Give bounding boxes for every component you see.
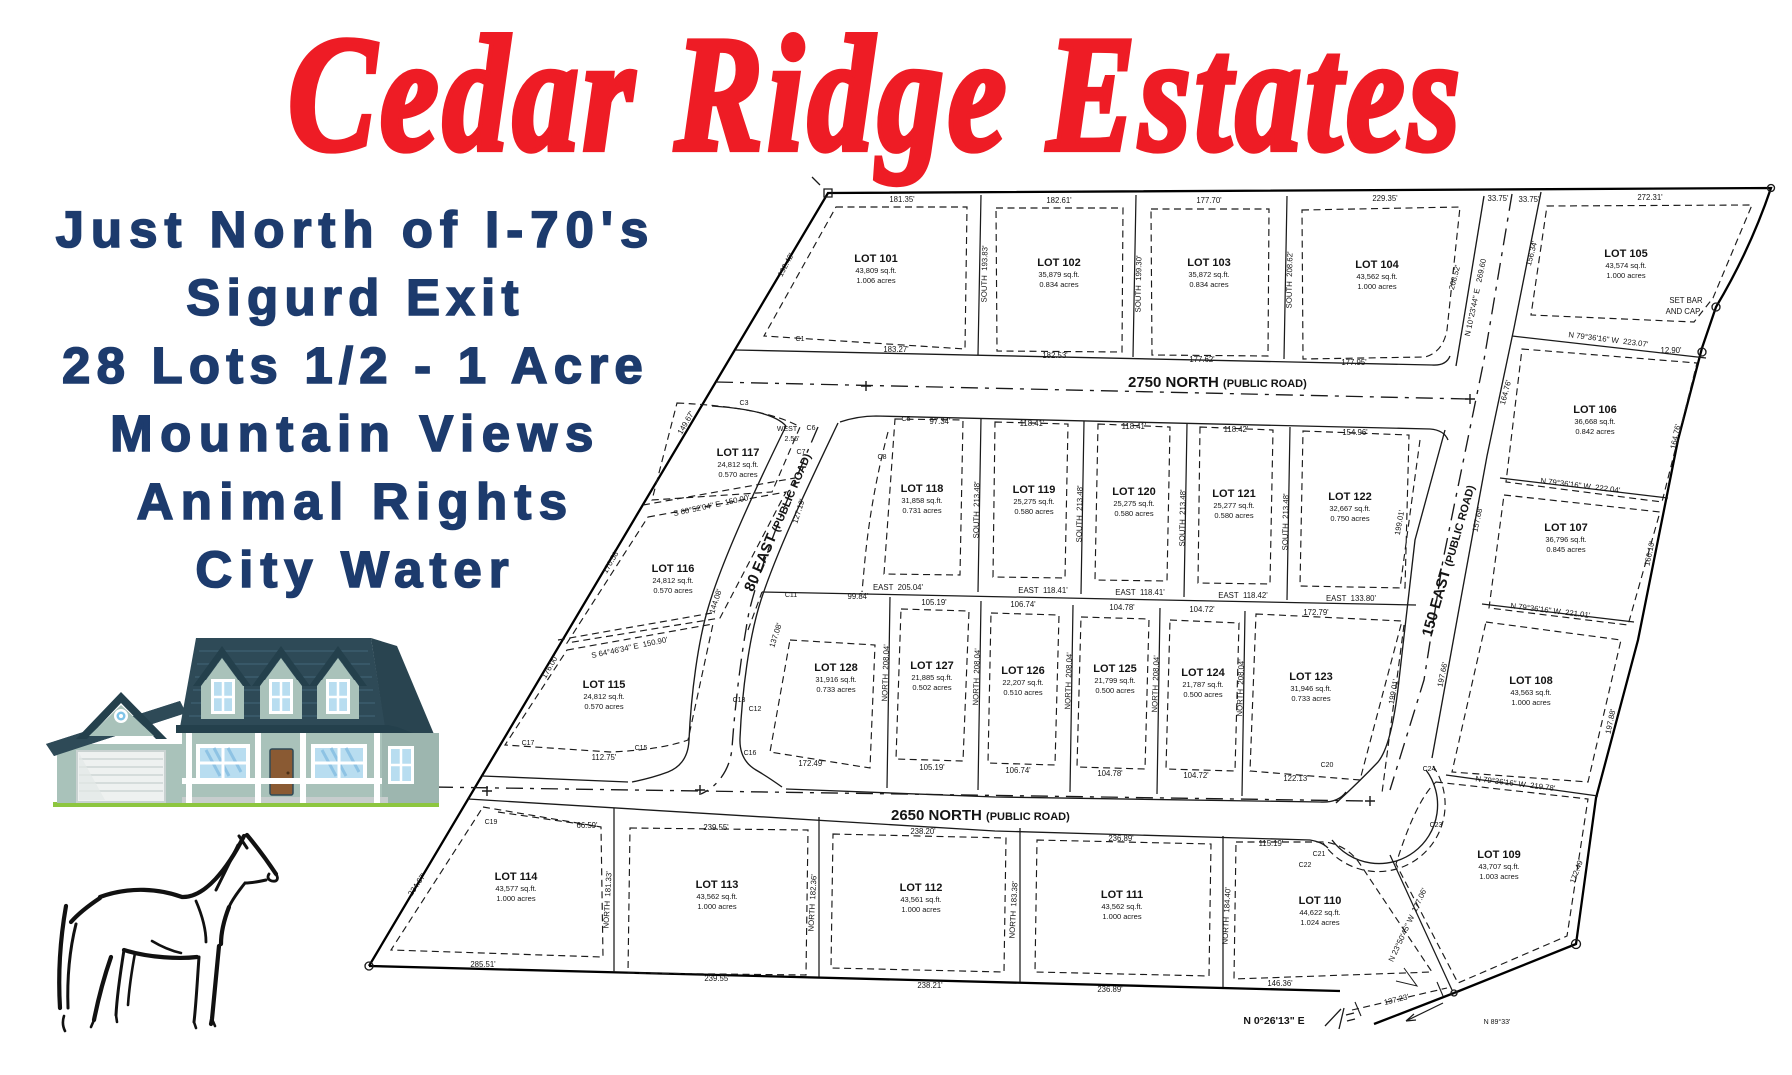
svg-text:LOT 113: LOT 113 — [696, 879, 739, 891]
svg-text:1.024 acres: 1.024 acres — [1300, 918, 1339, 927]
svg-text:1.000 acres: 1.000 acres — [1606, 271, 1645, 280]
svg-text:97.34': 97.34' — [930, 417, 952, 426]
svg-text:118.42': 118.42' — [1224, 425, 1249, 434]
svg-text:172.49': 172.49' — [798, 759, 824, 768]
svg-text:36,796 sq.ft.: 36,796 sq.ft. — [1545, 535, 1586, 544]
svg-text:43,577 sq.ft.: 43,577 sq.ft. — [495, 884, 536, 893]
svg-text:106.74': 106.74' — [1010, 600, 1036, 609]
svg-text:43,562 sq.ft.: 43,562 sq.ft. — [1101, 902, 1142, 911]
svg-text:177.70': 177.70' — [1196, 196, 1222, 205]
svg-text:137.23': 137.23' — [1383, 992, 1410, 1007]
svg-text:177.62': 177.62' — [1189, 355, 1215, 364]
svg-text:C17: C17 — [522, 740, 535, 747]
svg-text:N 89°33': N 89°33' — [1484, 1018, 1511, 1026]
svg-text:43,562 sq.ft.: 43,562 sq.ft. — [1356, 272, 1397, 281]
svg-text:C22: C22 — [1299, 862, 1312, 869]
svg-text:LOT 115: LOT 115 — [583, 679, 626, 691]
svg-text:1.000 acres: 1.000 acres — [901, 905, 940, 914]
svg-text:LOT 127: LOT 127 — [910, 660, 953, 672]
svg-text:208.52': 208.52' — [1447, 263, 1462, 290]
svg-text:0.834 acres: 0.834 acres — [1039, 280, 1078, 289]
svg-text:104.72': 104.72' — [1183, 771, 1209, 780]
svg-text:SOUTH 193.83': SOUTH 193.83' — [980, 245, 990, 303]
svg-text:112.75': 112.75' — [592, 753, 617, 762]
svg-text:25,275 sq.ft.: 25,275 sq.ft. — [1113, 499, 1154, 508]
svg-text:21,885 sq.ft.: 21,885 sq.ft. — [911, 673, 952, 682]
svg-text:SOUTH 213.48': SOUTH 213.48' — [1281, 493, 1291, 551]
svg-text:LOT 125: LOT 125 — [1093, 663, 1136, 675]
svg-text:EAST 118.41': EAST 118.41' — [1018, 586, 1068, 595]
svg-text:229.35': 229.35' — [1372, 194, 1398, 203]
svg-text:LOT 126: LOT 126 — [1001, 665, 1044, 677]
svg-text:25,275 sq.ft.: 25,275 sq.ft. — [1013, 497, 1054, 506]
svg-text:44,622 sq.ft.: 44,622 sq.ft. — [1299, 908, 1340, 917]
svg-text:EAST 118.41': EAST 118.41' — [1115, 588, 1165, 597]
svg-text:C8: C8 — [878, 454, 887, 461]
svg-text:1.000 acres: 1.000 acres — [1357, 282, 1396, 291]
svg-text:0.580 acres: 0.580 acres — [1014, 507, 1053, 516]
svg-text:22,207 sq.ft.: 22,207 sq.ft. — [1002, 678, 1043, 687]
svg-text:0.834 acres: 0.834 acres — [1189, 280, 1228, 289]
svg-text:199.01': 199.01' — [1393, 509, 1406, 536]
svg-text:236.89': 236.89' — [1097, 985, 1123, 994]
svg-text:LOT 102: LOT 102 — [1037, 257, 1080, 269]
svg-text:1.000 acres: 1.000 acres — [1511, 698, 1550, 707]
svg-text:238.20': 238.20' — [910, 827, 936, 836]
svg-text:LOT 110: LOT 110 — [1299, 895, 1342, 907]
svg-text:31,946 sq.ft.: 31,946 sq.ft. — [1290, 684, 1331, 693]
svg-text:LOT 104: LOT 104 — [1355, 259, 1399, 271]
svg-text:LOT 114: LOT 114 — [495, 871, 539, 883]
svg-text:239.55': 239.55' — [703, 823, 729, 832]
svg-text:99.84': 99.84' — [848, 592, 870, 601]
svg-text:C23: C23 — [1430, 822, 1443, 829]
svg-text:NORTH 208.04': NORTH 208.04' — [880, 644, 891, 702]
svg-text:182.61': 182.61' — [1046, 196, 1072, 205]
svg-text:137.08': 137.08' — [767, 621, 784, 648]
svg-text:NORTH 183.38': NORTH 183.38' — [1008, 881, 1020, 939]
svg-text:LOT 105: LOT 105 — [1604, 248, 1647, 260]
svg-text:N 79°36'16" W 223.07': N 79°36'16" W 223.07' — [1568, 330, 1649, 349]
svg-text:1.000 acres: 1.000 acres — [496, 894, 535, 903]
svg-text:43,707 sq.ft.: 43,707 sq.ft. — [1478, 862, 1519, 871]
svg-text:118.41': 118.41' — [1020, 419, 1045, 428]
svg-text:181.35': 181.35' — [889, 195, 915, 204]
svg-text:LOT 108: LOT 108 — [1509, 675, 1552, 687]
svg-text:104.78': 104.78' — [1109, 603, 1135, 612]
svg-text:24,812 sq.ft.: 24,812 sq.ft. — [583, 692, 624, 701]
svg-text:105.19': 105.19' — [921, 598, 947, 607]
svg-text:LOT 117: LOT 117 — [717, 447, 760, 459]
svg-text:LOT 119: LOT 119 — [1013, 484, 1056, 496]
svg-text:0.733 acres: 0.733 acres — [1291, 694, 1330, 703]
svg-text:SET BAR: SET BAR — [1669, 296, 1703, 305]
svg-text:NORTH 208.04': NORTH 208.04' — [1235, 659, 1246, 717]
svg-text:AND CAP: AND CAP — [1666, 307, 1701, 316]
svg-text:EAST 118.42': EAST 118.42' — [1218, 591, 1268, 600]
svg-text:WEST: WEST — [777, 426, 798, 433]
svg-text:66.59': 66.59' — [577, 821, 599, 830]
svg-text:0.570 acres: 0.570 acres — [584, 702, 623, 711]
svg-text:LOT 116: LOT 116 — [652, 563, 695, 575]
svg-text:105.19': 105.19' — [919, 763, 945, 772]
svg-text:25,277 sq.ft.: 25,277 sq.ft. — [1213, 501, 1254, 510]
svg-text:0.500 acres: 0.500 acres — [1095, 686, 1134, 695]
svg-text:C21: C21 — [1313, 851, 1326, 858]
svg-text:N 0°26'13" E: N 0°26'13" E — [1243, 1015, 1304, 1027]
svg-text:0.510 acres: 0.510 acres — [1003, 688, 1042, 697]
svg-text:33.75': 33.75' — [1519, 195, 1541, 204]
svg-text:LOT 107: LOT 107 — [1544, 522, 1587, 534]
svg-text:1.006 acres: 1.006 acres — [856, 276, 895, 285]
svg-text:LOT 123: LOT 123 — [1289, 671, 1332, 683]
svg-text:EAST 205.04': EAST 205.04' — [873, 583, 924, 592]
svg-text:LOT 109: LOT 109 — [1477, 849, 1520, 861]
svg-text:172.49': 172.49' — [1568, 857, 1585, 884]
svg-text:192.42': 192.42' — [776, 251, 796, 278]
svg-text:146.36': 146.36' — [1267, 979, 1293, 988]
svg-text:LOT 106: LOT 106 — [1573, 404, 1616, 416]
svg-text:C24: C24 — [1423, 766, 1436, 773]
svg-text:104.72': 104.72' — [1189, 605, 1215, 614]
svg-text:43,561 sq.ft.: 43,561 sq.ft. — [900, 895, 941, 904]
svg-text:31,858 sq.ft.: 31,858 sq.ft. — [901, 496, 942, 505]
svg-text:33.75': 33.75' — [1488, 194, 1510, 203]
svg-text:LOT 118: LOT 118 — [901, 483, 944, 495]
svg-text:C5: C5 — [902, 416, 911, 423]
svg-text:1.000 acres: 1.000 acres — [1102, 912, 1141, 921]
svg-text:0.580 acres: 0.580 acres — [1114, 509, 1153, 518]
svg-text:LOT 121: LOT 121 — [1212, 488, 1255, 500]
svg-text:SOUTH 208.62': SOUTH 208.62' — [1285, 251, 1295, 309]
svg-text:157.68': 157.68' — [1471, 506, 1485, 533]
svg-text:1.000 acres: 1.000 acres — [697, 902, 736, 911]
svg-text:0.502 acres: 0.502 acres — [912, 683, 951, 692]
svg-text:0.750 acres: 0.750 acres — [1330, 514, 1369, 523]
svg-text:35,879 sq.ft.: 35,879 sq.ft. — [1038, 270, 1079, 279]
svg-text:EAST 133.80': EAST 133.80' — [1326, 594, 1377, 603]
svg-text:LOT 124: LOT 124 — [1181, 667, 1225, 679]
svg-text:0.731 acres: 0.731 acres — [902, 506, 941, 515]
svg-text:0.845 acres: 0.845 acres — [1546, 545, 1585, 554]
svg-text:NORTH 208.04': NORTH 208.04' — [1063, 652, 1074, 710]
svg-text:LOT 111: LOT 111 — [1101, 889, 1143, 901]
svg-text:0.842 acres: 0.842 acres — [1575, 427, 1614, 436]
svg-text:N 79°36'16" W 219.78': N 79°36'16" W 219.78' — [1475, 774, 1556, 793]
svg-text:N 79°36'16" W 222.04': N 79°36'16" W 222.04' — [1540, 476, 1621, 495]
svg-text:177.95': 177.95' — [1341, 358, 1367, 367]
svg-text:156.34': 156.34' — [1524, 239, 1539, 266]
svg-text:285.51': 285.51' — [470, 960, 496, 969]
svg-text:0.500 acres: 0.500 acres — [1183, 690, 1222, 699]
svg-text:104.78': 104.78' — [1097, 769, 1123, 778]
svg-text:164.76': 164.76' — [1498, 378, 1513, 405]
svg-text:C1: C1 — [796, 336, 805, 343]
svg-text:NORTH 182.36': NORTH 182.36' — [807, 874, 819, 932]
svg-text:183.27': 183.27' — [883, 345, 909, 354]
svg-text:SOUTH 213.48': SOUTH 213.48' — [1178, 489, 1188, 547]
svg-text:236.89': 236.89' — [1108, 834, 1134, 843]
svg-text:C20: C20 — [1321, 762, 1334, 769]
svg-text:0.733 acres: 0.733 acres — [816, 685, 855, 694]
svg-text:NORTH 208.04': NORTH 208.04' — [971, 648, 982, 706]
svg-text:0.570 acres: 0.570 acres — [718, 470, 757, 479]
svg-text:239.55': 239.55' — [704, 974, 730, 983]
svg-text:LOT 120: LOT 120 — [1112, 486, 1155, 498]
svg-text:182.53': 182.53' — [1042, 351, 1068, 360]
svg-text:21,799 sq.ft.: 21,799 sq.ft. — [1094, 676, 1135, 685]
svg-text:C15: C15 — [635, 745, 648, 752]
svg-text:32,667 sq.ft.: 32,667 sq.ft. — [1329, 504, 1370, 513]
svg-text:2750 NORTH (PUBLIC ROAD): 2750 NORTH (PUBLIC ROAD) — [1128, 374, 1307, 391]
svg-text:115.19': 115.19' — [1259, 839, 1284, 848]
svg-text:SOUTH 213.48': SOUTH 213.48' — [972, 481, 982, 539]
svg-text:2.56': 2.56' — [785, 436, 800, 443]
svg-text:122.13': 122.13' — [1283, 774, 1309, 783]
svg-text:C11: C11 — [785, 592, 797, 599]
svg-text:LOT 112: LOT 112 — [900, 882, 943, 894]
svg-text:12.90': 12.90' — [1661, 346, 1683, 355]
svg-text:NORTH 208.04': NORTH 208.04' — [1150, 655, 1161, 713]
svg-text:C13: C13 — [733, 697, 746, 704]
svg-text:C19: C19 — [485, 819, 498, 826]
svg-text:1.003 acres: 1.003 acres — [1479, 872, 1518, 881]
svg-text:164.76': 164.76' — [1669, 423, 1683, 450]
svg-text:C6: C6 — [807, 425, 816, 432]
svg-text:150 EAST (PUBLIC ROAD): 150 EAST (PUBLIC ROAD) — [1419, 483, 1479, 639]
svg-text:272.31': 272.31' — [1637, 193, 1663, 202]
svg-text:31,916 sq.ft.: 31,916 sq.ft. — [815, 675, 856, 684]
svg-text:24,812 sq.ft.: 24,812 sq.ft. — [652, 576, 693, 585]
svg-text:SOUTH 199.30': SOUTH 199.30' — [1134, 255, 1144, 313]
svg-text:118.41': 118.41' — [1122, 422, 1147, 431]
svg-text:N 79°36'16" W 221.01': N 79°36'16" W 221.01' — [1510, 601, 1591, 620]
svg-text:0.580 acres: 0.580 acres — [1214, 511, 1253, 520]
svg-text:35,872 sq.ft.: 35,872 sq.ft. — [1188, 270, 1229, 279]
svg-text:154.96': 154.96' — [1342, 428, 1368, 437]
svg-text:C16: C16 — [744, 750, 757, 757]
svg-text:43,562 sq.ft.: 43,562 sq.ft. — [696, 892, 737, 901]
svg-text:43,809 sq.ft.: 43,809 sq.ft. — [855, 266, 896, 275]
svg-text:172.79': 172.79' — [1303, 608, 1329, 617]
svg-text:24,812 sq.ft.: 24,812 sq.ft. — [717, 460, 758, 469]
svg-text:LOT 101: LOT 101 — [854, 253, 897, 265]
svg-text:NORTH 181.33': NORTH 181.33' — [602, 871, 614, 929]
svg-text:LOT 128: LOT 128 — [814, 662, 857, 674]
svg-text:S 60°52'04" E 150.00': S 60°52'04" E 150.00' — [672, 493, 750, 518]
svg-text:SOUTH 213.48': SOUTH 213.48' — [1075, 485, 1085, 543]
svg-text:C12: C12 — [749, 706, 762, 713]
svg-text:238.21': 238.21' — [917, 981, 943, 990]
svg-text:106.74': 106.74' — [1005, 766, 1031, 775]
svg-text:C3: C3 — [740, 400, 749, 407]
svg-text:0.570 acres: 0.570 acres — [653, 586, 692, 595]
svg-text:NORTH 184.40': NORTH 184.40' — [1221, 887, 1233, 945]
svg-text:36,668 sq.ft.: 36,668 sq.ft. — [1574, 417, 1615, 426]
svg-text:43,574 sq.ft.: 43,574 sq.ft. — [1605, 261, 1646, 270]
svg-text:21,787 sq.ft.: 21,787 sq.ft. — [1182, 680, 1223, 689]
svg-text:170.58': 170.58' — [601, 548, 622, 575]
svg-text:234.67': 234.67' — [406, 871, 428, 897]
svg-text:43,563 sq.ft.: 43,563 sq.ft. — [1510, 688, 1551, 697]
svg-text:LOT 103: LOT 103 — [1187, 257, 1230, 269]
svg-text:2650 NORTH (PUBLIC ROAD): 2650 NORTH (PUBLIC ROAD) — [891, 807, 1070, 824]
svg-text:LOT 122: LOT 122 — [1328, 491, 1371, 503]
